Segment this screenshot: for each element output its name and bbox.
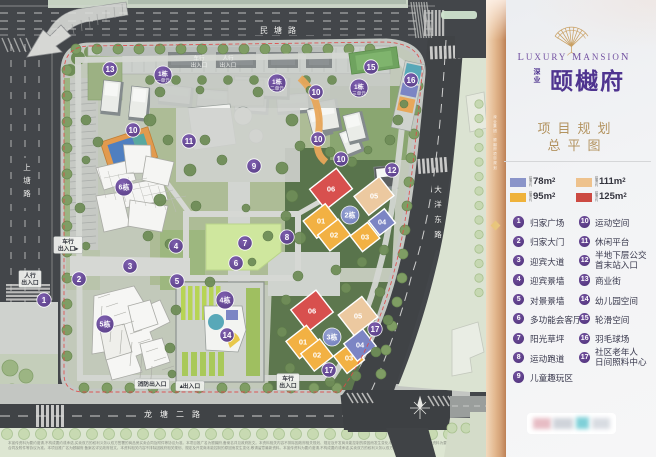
svg-text:人行: 人行 [222, 54, 234, 62]
svg-text:4: 4 [174, 242, 179, 251]
svg-text:洋: 洋 [434, 199, 442, 209]
svg-text:04: 04 [378, 218, 387, 227]
svg-text:龙塘二路: 龙塘二路 [144, 409, 208, 419]
svg-text:1栋: 1栋 [272, 78, 282, 86]
svg-text:东: 东 [434, 214, 442, 224]
svg-text:人行: 人行 [23, 272, 36, 280]
svg-text:2: 2 [77, 275, 82, 284]
svg-text:13: 13 [106, 65, 115, 74]
svg-text:11: 11 [185, 137, 194, 146]
svg-text:3栋: 3栋 [327, 333, 338, 342]
svg-text:出入口: 出入口 [220, 61, 237, 69]
svg-text:06: 06 [327, 185, 335, 194]
svg-text:17: 17 [371, 325, 380, 334]
svg-text:01: 01 [299, 338, 307, 347]
svg-text:9: 9 [252, 162, 257, 171]
svg-text:8: 8 [285, 233, 290, 242]
svg-text:出入口: 出入口 [191, 61, 208, 69]
svg-text:三单元: 三单元 [352, 90, 366, 97]
svg-text:出入口: 出入口 [21, 279, 39, 287]
svg-text:二单元: 二单元 [270, 85, 284, 92]
svg-text:14: 14 [223, 331, 232, 340]
svg-text:1: 1 [42, 296, 47, 305]
svg-text:3: 3 [128, 262, 133, 271]
svg-text:上: 上 [23, 163, 31, 172]
svg-text:5: 5 [175, 277, 180, 286]
svg-text:消防出入口: 消防出入口 [138, 380, 167, 388]
svg-text:出入口▸: 出入口▸ [58, 245, 79, 253]
svg-text:03: 03 [361, 233, 369, 242]
svg-text:塘: 塘 [23, 175, 31, 185]
svg-text:10: 10 [312, 88, 321, 97]
svg-text:合同及附件等协议为准。本项目推广名为颐樾府,备案名详见政府批: 合同及附件等协议为准。本项目推广名为颐樾府,备案名详见政府批文。本资料相关内容不… [8, 445, 422, 450]
svg-text:一单元: 一单元 [156, 77, 170, 84]
svg-text:1栋: 1栋 [158, 70, 168, 78]
svg-text:10: 10 [129, 126, 138, 135]
svg-text:01: 01 [317, 217, 325, 226]
svg-text:6: 6 [234, 259, 239, 268]
svg-text:10: 10 [314, 135, 323, 144]
svg-text:车行: 车行 [282, 375, 294, 383]
svg-text:02: 02 [313, 351, 321, 360]
svg-text:车行: 车行 [193, 54, 205, 62]
svg-text:12: 12 [388, 166, 397, 175]
svg-text:路: 路 [434, 229, 442, 239]
svg-text:车行: 车行 [62, 238, 74, 246]
svg-text:17: 17 [325, 366, 334, 375]
svg-text:06: 06 [308, 307, 316, 316]
svg-text:▴出入口: ▴出入口 [179, 382, 201, 390]
svg-text:出入口: 出入口 [279, 382, 297, 390]
svg-text:大: 大 [434, 184, 442, 194]
svg-text:民塘路: 民塘路 [260, 25, 302, 35]
svg-text:路: 路 [23, 188, 31, 198]
svg-text:10: 10 [337, 155, 346, 164]
svg-text:5栋: 5栋 [100, 320, 111, 329]
svg-text:16: 16 [407, 76, 416, 85]
svg-text:04: 04 [356, 341, 365, 350]
svg-text:6栋: 6栋 [119, 183, 130, 192]
svg-text:1栋: 1栋 [354, 83, 364, 91]
svg-text:05: 05 [370, 192, 378, 201]
svg-text:7: 7 [243, 239, 248, 248]
svg-text:15: 15 [367, 63, 376, 72]
svg-text:02: 02 [330, 231, 338, 240]
svg-text:2栋: 2栋 [345, 211, 356, 220]
svg-text:4栋: 4栋 [220, 296, 231, 305]
svg-text:05: 05 [354, 312, 362, 321]
